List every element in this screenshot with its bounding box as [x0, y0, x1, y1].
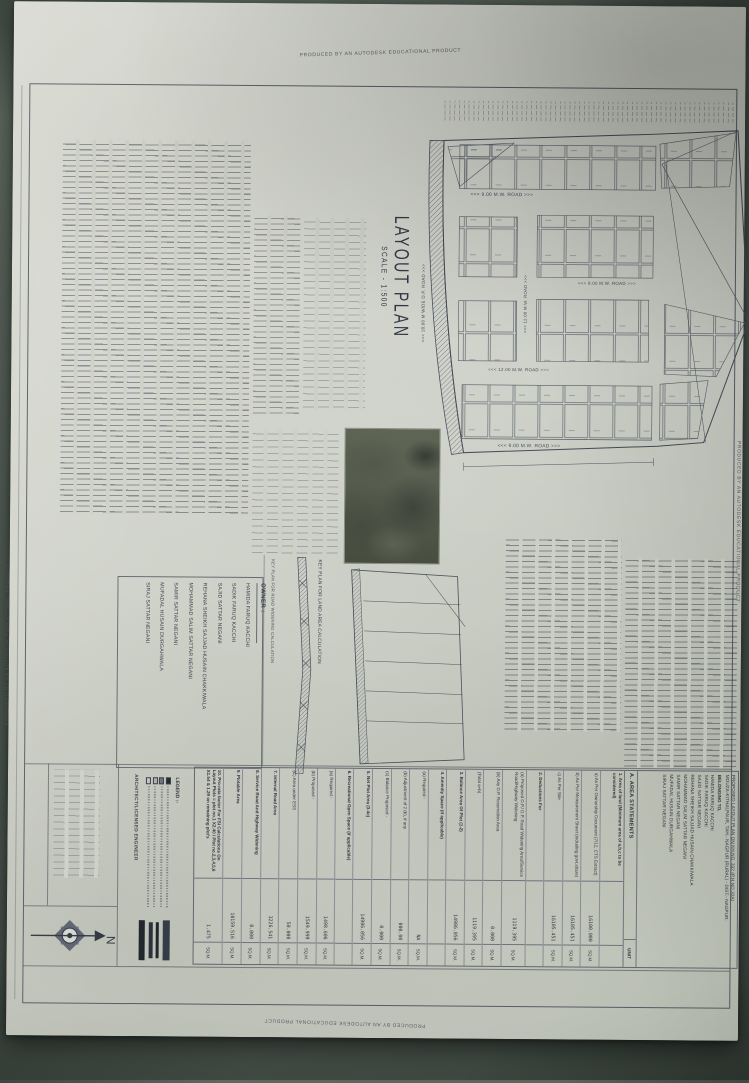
row-label: c) As Per Site [544, 770, 562, 881]
belonging-owner-list: HAMIDA FARUQ KACCHISADIK FARUQ KACCHISAJ… [659, 774, 716, 964]
layout-plan-drawing [413, 122, 749, 480]
owner-block: OWNER : HAMIDA FARUQ KACCHISADIK FARUQ K… [116, 576, 264, 769]
row-unit: SQ.M. [316, 944, 334, 965]
table-row: (Total a+b) 1119.395 SQ.M. [463, 770, 483, 966]
legend-swatch [166, 777, 171, 784]
dimension-strip-texture [443, 101, 735, 123]
architect-stamp-texture [53, 769, 100, 877]
table-row: 2. Deductions For [525, 770, 545, 966]
area-calculation-notes-texture [303, 217, 367, 409]
row-value: 0.000 [483, 881, 501, 945]
road-label-12m-vertical: <<< 12.00 M.W. ROAD >>> [522, 233, 534, 333]
table-row: a) As Per Ownership Document (7/12, CTS … [580, 771, 600, 967]
owner-name: SAJID SATTAR NEGANI [210, 583, 226, 773]
legend-entry [157, 777, 165, 907]
row-label: 8. Service Road And Highway Widening [242, 768, 260, 879]
row-label: 3. Balance Area Of Plot (1-2) [446, 770, 464, 881]
row-label: (b) Adjustment of 2 (b), if any [391, 769, 409, 880]
owner-name: REHANA SHEIKH SAJJAD HUSAIN CHAKKIWALA [196, 583, 212, 773]
row-value: 1.475 [194, 879, 223, 943]
road-label-dp-vertical: <<< 18.00 M WIDE D.P. ROAD >>> [420, 210, 434, 342]
plot-schedule-table-texture [60, 140, 251, 515]
row-value [428, 880, 446, 944]
row-value: 10159.516 [223, 879, 241, 943]
row-unit: SQ.M. [372, 944, 390, 965]
row-value: 0.000 [242, 879, 260, 943]
table-row: (a) Required - 1498.606 SQ.M. [315, 769, 335, 965]
architect-label-block: ARCHITECT/LICENSED ENGINEER [121, 774, 138, 904]
owner-name: SAMIR SATTAR NEGANI [167, 582, 183, 772]
row-value: 14986.056 [446, 881, 464, 945]
row-value: 50.000 [279, 879, 297, 943]
row-label: 7. Internal Road Area [261, 768, 279, 879]
table-row: 4. Amenity Space (if applicable) [427, 769, 447, 965]
road-label-9m-top: <<< 9.00 M.W. ROAD >>> [471, 193, 534, 198]
belonging-owner-name: MUFADAL HUSAIN DURGAHWALA [666, 774, 674, 964]
area-statements-heading: A. AREA STATEMENTS [627, 771, 634, 939]
legend-block: LEGEND :- [143, 774, 178, 904]
table-row: 6. Recreational Open Space (if applicabl… [334, 769, 354, 965]
legend-entry [144, 777, 152, 907]
table-row: 7. Internal Road Area 3226.541 SQ.M. [259, 768, 279, 964]
legend-entry [151, 777, 159, 907]
belonging-to-label: BELONGING TO, [714, 775, 722, 965]
owner-name: MUFADAL HUSAIN DURGAHWALA [153, 582, 169, 772]
area-statements-rows: 1. Area of land (Minimum area of a,b,c t… [194, 768, 625, 967]
row-label: (b) Proposed - [298, 768, 316, 879]
plot-area-schedule-texture-1 [504, 539, 622, 732]
table-row: 8. Service Road And Highway Widening 0.0… [241, 768, 261, 964]
row-label: (b) Any D.P. Reservation Area [484, 770, 502, 881]
table-row: b) As Per Measurement Sheet (including g… [561, 770, 581, 966]
scale-label: SCALE - 1:500 [379, 246, 388, 308]
row-value [335, 880, 353, 944]
table-row: (a) Proposed D.P./ D.P. Road Widening Ar… [501, 770, 526, 966]
row-unit: SQ.M. [544, 945, 562, 966]
row-label: 9. Plotable Area [224, 768, 242, 879]
unit-column-heading: UNIT [624, 939, 636, 967]
row-label: 10. Pro-rata factor For FSI Calculations… [194, 768, 223, 879]
row-label: 5. Net Plot Area (3-4c) [354, 769, 372, 880]
table-row: 9. Plotable Area 10159.516 SQ.M. [222, 768, 242, 964]
row-label: (a) Proposed D.P./ D.P. Road Widening Ar… [502, 770, 526, 881]
row-label: 6. Recreational Open Space (if applicabl… [335, 769, 353, 880]
row-unit: SQ.M. [464, 945, 482, 966]
row-label: 4. Amenity Space (if applicable) [428, 769, 446, 880]
legend-swatch [159, 777, 164, 784]
table-row: 5. Net Plot Area (3-4c) 14986.056 SQ.M. [352, 769, 372, 965]
row-label: a) As Per Ownership Document (7/12, CTS … [582, 771, 600, 882]
row-label: (Total a+b) [465, 770, 483, 881]
table-row: (b) Proposed - 1549.999 SQ.M. [297, 768, 317, 964]
plot-area-schedule-texture-2 [624, 558, 738, 769]
north-compass: N [25, 903, 119, 966]
row-value: 000.00 [390, 880, 408, 944]
row-unit: SQ.M. [390, 944, 408, 965]
photographed-layout-plan-sheet: { "watermark": { "text": "PRODUCED BY AN… [0, 0, 749, 1080]
road-area-notes-texture [252, 429, 339, 556]
table-row: (a) Required - NA SQ.M. [408, 769, 428, 965]
legend-swatch [153, 777, 158, 784]
owner-name: SIRAJ SATTAR NEGANI [138, 582, 154, 772]
table-row: (C) Area under ESS 50.000 SQ.M. [278, 768, 298, 964]
row-value [526, 881, 544, 945]
road-label-12m: <<< 12.00 M.W. ROAD >>> [488, 367, 549, 372]
row-value: 16105.451 [544, 881, 562, 945]
row-value: 1498.606 [316, 880, 334, 944]
row-value [600, 882, 623, 946]
owner-name-list: HAMIDA FARUQ KACCHISADIK FARUQ KACCHISAJ… [138, 582, 255, 773]
key-plan-road-drawing [276, 551, 318, 777]
row-unit: SQ.M. [279, 943, 297, 964]
table-row: 3. Balance Area Of Plot (1-2) 14986.056 … [445, 770, 465, 966]
row-value: 1119.395 [502, 881, 525, 945]
row-value: 0.000 [372, 880, 390, 944]
table-row: 1. Area of land (Minimum area of a,b,c t… [599, 771, 624, 967]
row-label: (a) Required - [410, 769, 428, 880]
table-row: (b) Adjustment of 2 (b), if any 000.00 S… [389, 769, 409, 965]
page-title: LAYOUT PLAN [390, 216, 414, 339]
legend-entry [164, 777, 172, 907]
area-statements-header-row: A. AREA STATEMENTS UNIT [623, 771, 638, 967]
row-unit: SQ.M. [353, 944, 371, 965]
row-unit: SQ.M. [502, 945, 525, 966]
location-map-inset [344, 428, 441, 565]
row-label: 2. Deductions For [526, 770, 544, 881]
legend-heading: LEGEND :- [173, 777, 180, 907]
table-row: c) As Per Site 16105.451 SQ.M. [543, 770, 563, 966]
row-unit: SQ.M. [260, 943, 278, 964]
table-row: (c) Balance Proposed - 0.000 SQ.M. [371, 769, 391, 965]
row-unit: SQ.M. [483, 945, 501, 966]
autodesk-watermark-top: PRODUCED BY AN AUTODESK EDUCATIONAL PROD… [300, 48, 462, 59]
belonging-owner-name: SIRAJ SATTAR NEGANI [659, 774, 667, 964]
row-value: 1549.999 [298, 879, 316, 943]
row-unit: SQ.M. [298, 943, 316, 964]
row-label: 1. Area of land (Minimum area of a,b,c t… [600, 771, 624, 882]
row-label: (a) Required - [317, 769, 335, 880]
plot-schedule-column-texture [253, 215, 301, 415]
project-heading-block: PROPOSED LAYOUT PLAN ON KH.NO. 332 (P.H.… [636, 771, 739, 968]
legend-hatch-bars [135, 916, 181, 964]
belonging-owner-name: SAMIR SATTAR NEGANI [673, 774, 681, 964]
row-unit [335, 944, 352, 965]
row-unit: SQ.M. [194, 943, 223, 964]
row-unit [600, 946, 623, 967]
owner-name: SADIK FARUQ KACCHI [225, 583, 241, 773]
row-value: 3226.541 [260, 879, 278, 943]
row-value: 1119.395 [465, 881, 483, 945]
row-value: NA [409, 880, 427, 944]
table-row: 10. Pro-rata factor For FSI Calculations… [194, 768, 224, 964]
row-value: 16100.000 [581, 882, 599, 946]
row-value: 16105.451 [563, 881, 581, 945]
owner-name: HAMIDA FARUQ KACCHI [239, 583, 255, 773]
row-unit: SQ.M. [409, 944, 427, 965]
table-row: (b) Any D.P. Reservation Area 0.000 SQ.M… [482, 770, 502, 966]
row-unit: SQ.M. [562, 945, 580, 966]
row-unit [428, 944, 445, 965]
row-unit: SQ.M. [223, 943, 241, 964]
row-unit [526, 945, 543, 966]
road-label-9m-mid: <<< 9.00 M.W. ROAD >>> [578, 281, 636, 286]
autodesk-watermark-bottom: PRODUCED BY AN AUTODESK EDUCATIONAL PROD… [264, 1017, 426, 1028]
row-value: 14986.056 [353, 880, 371, 944]
row-label: (c) Balance Proposed - [372, 769, 390, 880]
north-letter: N [104, 936, 118, 945]
row-unit: SQ.M. [581, 946, 599, 967]
legend-swatch [146, 777, 151, 784]
row-unit: SQ.M. [242, 943, 260, 964]
owner-name: MOHAMMAD SALIM SATTAR NEGANI [181, 582, 197, 772]
area-statements-table: PROPOSED LAYOUT PLAN ON KH.NO. 332 (P.H.… [193, 767, 740, 969]
row-unit: SQ.M. [446, 945, 464, 966]
row-label: b) As Per Measurement Sheet (including g… [563, 770, 581, 881]
road-label-9m-bottom: <<< 9.00 M.W. ROAD >>> [498, 444, 561, 449]
row-label: (C) Area under ESS [280, 768, 298, 879]
key-plan-land-drawing [324, 556, 474, 772]
paper-sheet: PRODUCED BY AN AUTODESK EDUCATIONAL PROD… [6, 1, 746, 1041]
